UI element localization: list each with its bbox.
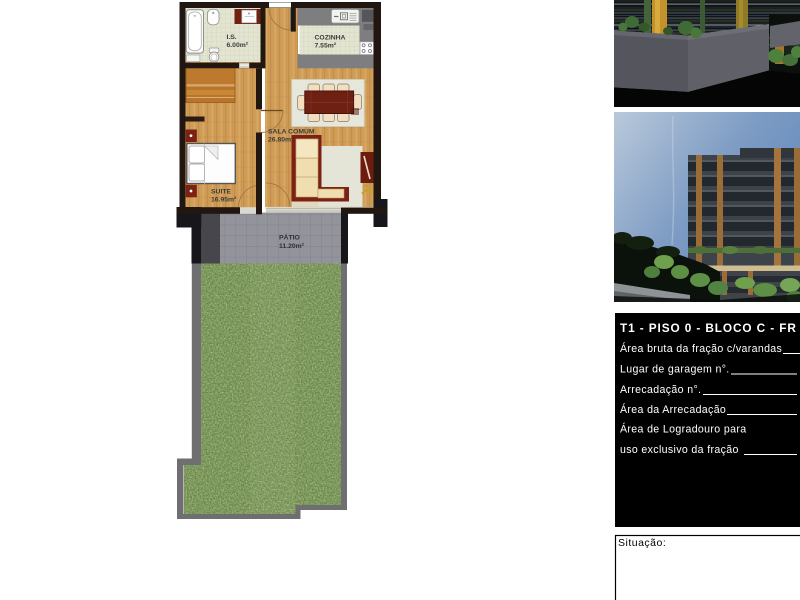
svg-text:16.95m²: 16.95m² [211,197,237,204]
svg-text:26.80m²: 26.80m² [268,137,294,144]
svg-text:SUITE: SUITE [211,189,231,196]
svg-text:6.00m²: 6.00m² [227,42,249,49]
svg-text:COZINHA: COZINHA [315,35,346,42]
svg-text:Situação:: Situação: [618,537,666,549]
svg-text:7.55m²: 7.55m² [315,43,337,50]
svg-text:I.S.: I.S. [227,34,237,41]
svg-text:Arrecadação n°.: Arrecadação n°. [620,384,701,396]
svg-text:Área da Arrecadação: Área da Arrecadação [620,403,726,416]
svg-text:Área de Logradouro para: Área de Logradouro para [620,423,746,436]
svg-text:Área bruta da fração c/varanda: Área bruta da fração c/varandas [620,342,782,355]
svg-text:11.20m²: 11.20m² [279,243,305,250]
svg-text:Lugar de garagem n°.: Lugar de garagem n°. [620,364,730,376]
svg-text:PÁTIO: PÁTIO [279,233,300,242]
svg-text:uso exclusivo da fração: uso exclusivo da fração [620,444,739,456]
svg-text:T1 - PISO 0 - BLOCO C - FR: T1 - PISO 0 - BLOCO C - FR [620,321,797,335]
svg-text:SALA COMUM: SALA COMUM [268,129,315,136]
